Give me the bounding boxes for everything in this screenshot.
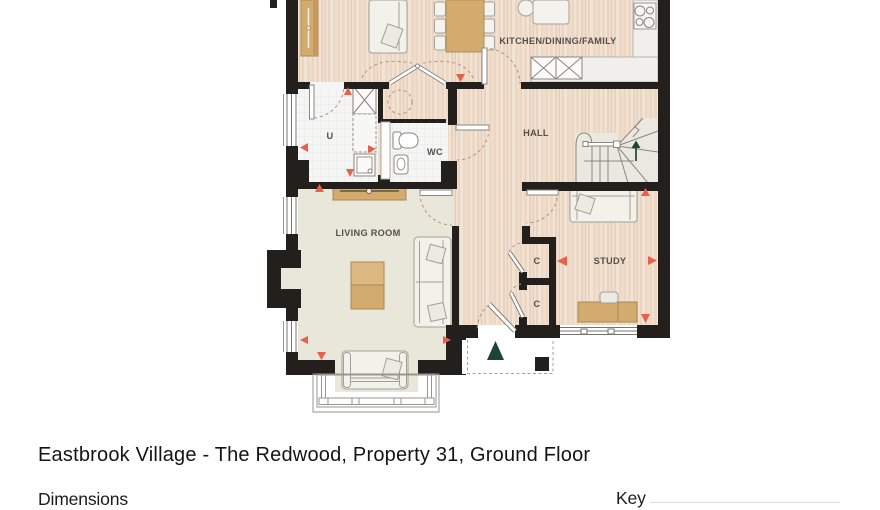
svg-text:STUDY: STUDY (594, 256, 627, 266)
svg-text:C: C (534, 299, 541, 309)
svg-text:Eastbrook Village - The Redwoo: Eastbrook Village - The Redwood, Propert… (38, 444, 590, 466)
svg-text:HALL: HALL (523, 128, 549, 138)
svg-text:LIVING ROOM: LIVING ROOM (335, 228, 400, 238)
svg-text:U: U (327, 131, 334, 141)
svg-text:KITCHEN/DINING/FAMILY: KITCHEN/DINING/FAMILY (499, 36, 616, 46)
svg-text:Dimensions: Dimensions (38, 489, 128, 509)
svg-text:Key: Key (616, 488, 646, 508)
svg-text:WC: WC (427, 147, 443, 157)
svg-text:C: C (534, 256, 541, 266)
